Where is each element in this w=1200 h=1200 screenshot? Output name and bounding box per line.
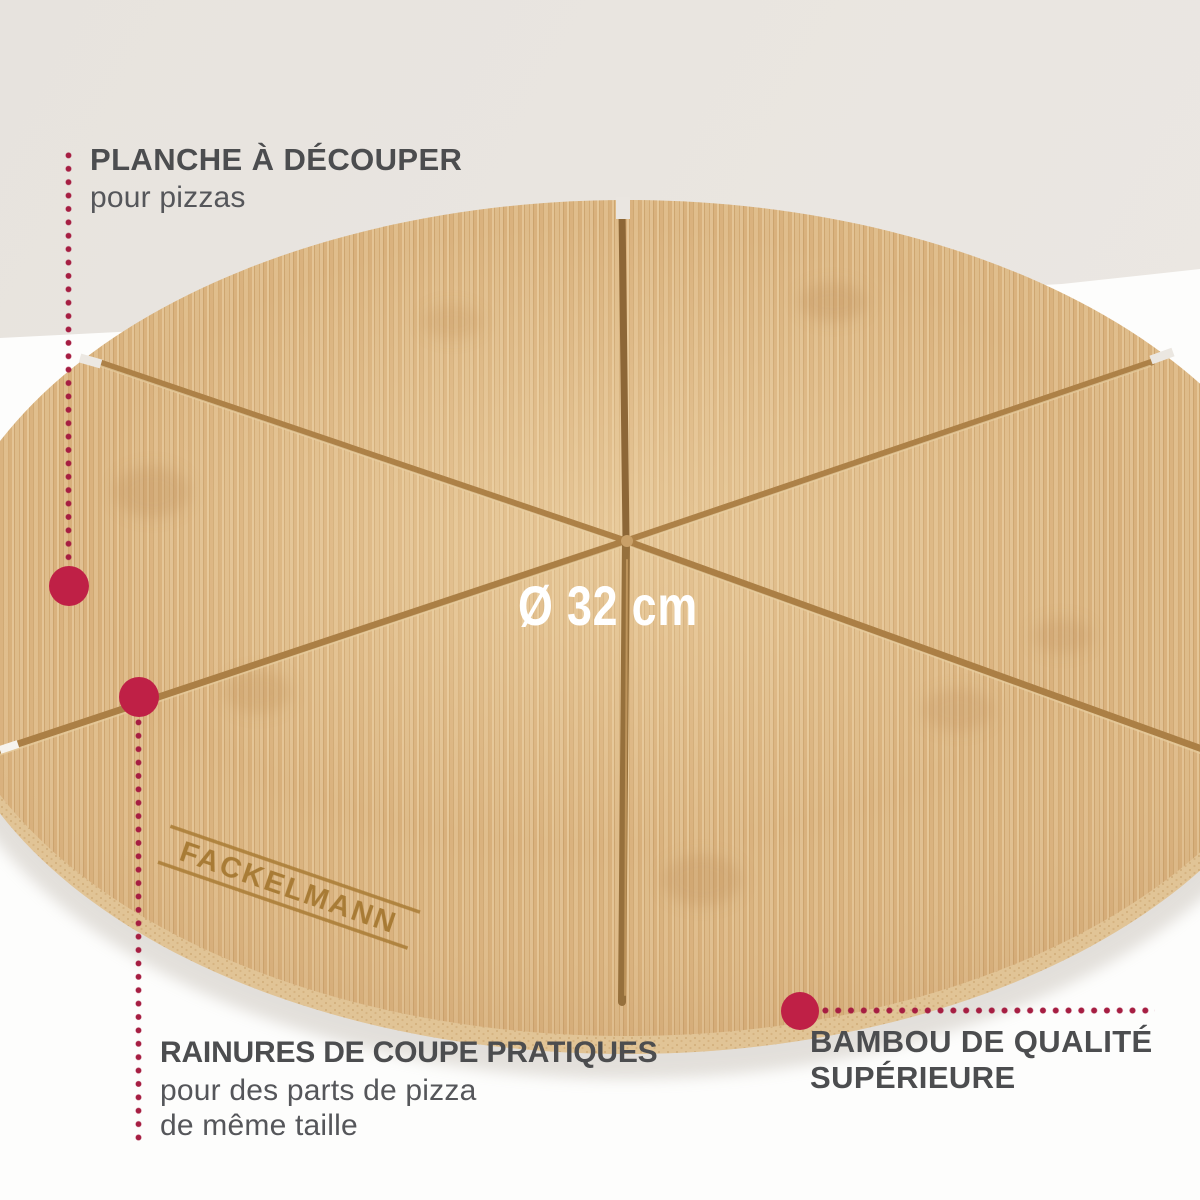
callout-rainures-subtitle-1: pour des parts de pizza bbox=[160, 1074, 657, 1109]
callout-bambou-title-1: BAMBOU DE QUALITÉ bbox=[810, 1024, 1153, 1060]
callout-bambou: BAMBOU DE QUALITÉ SUPÉRIEURE bbox=[810, 1024, 1153, 1096]
callout-rainures: RAINURES DE COUPE PRATIQUES pour des par… bbox=[160, 1036, 657, 1143]
diameter-label: Ø 32 cm bbox=[518, 574, 698, 637]
leader-line-bambou bbox=[822, 1007, 1155, 1014]
callout-rainures-title: RAINURES DE COUPE PRATIQUES bbox=[160, 1036, 657, 1071]
product-infographic: FACKELMANN Ø 32 cm PLANCHE À DÉCOUPER po… bbox=[0, 0, 1200, 1200]
leader-line-rainures bbox=[135, 719, 142, 1143]
callout-planche-title: PLANCHE À DÉCOUPER bbox=[90, 142, 462, 178]
callout-planche: PLANCHE À DÉCOUPER pour pizzas bbox=[90, 142, 462, 216]
groove-crossing bbox=[621, 535, 633, 547]
callout-planche-subtitle: pour pizzas bbox=[90, 181, 462, 216]
marker-dot-rainures bbox=[119, 677, 159, 717]
marker-dot-planche bbox=[49, 566, 89, 606]
callout-rainures-subtitle-2: de même taille bbox=[160, 1109, 657, 1144]
leader-line-planche bbox=[65, 152, 72, 564]
callout-bambou-title-2: SUPÉRIEURE bbox=[810, 1060, 1153, 1096]
